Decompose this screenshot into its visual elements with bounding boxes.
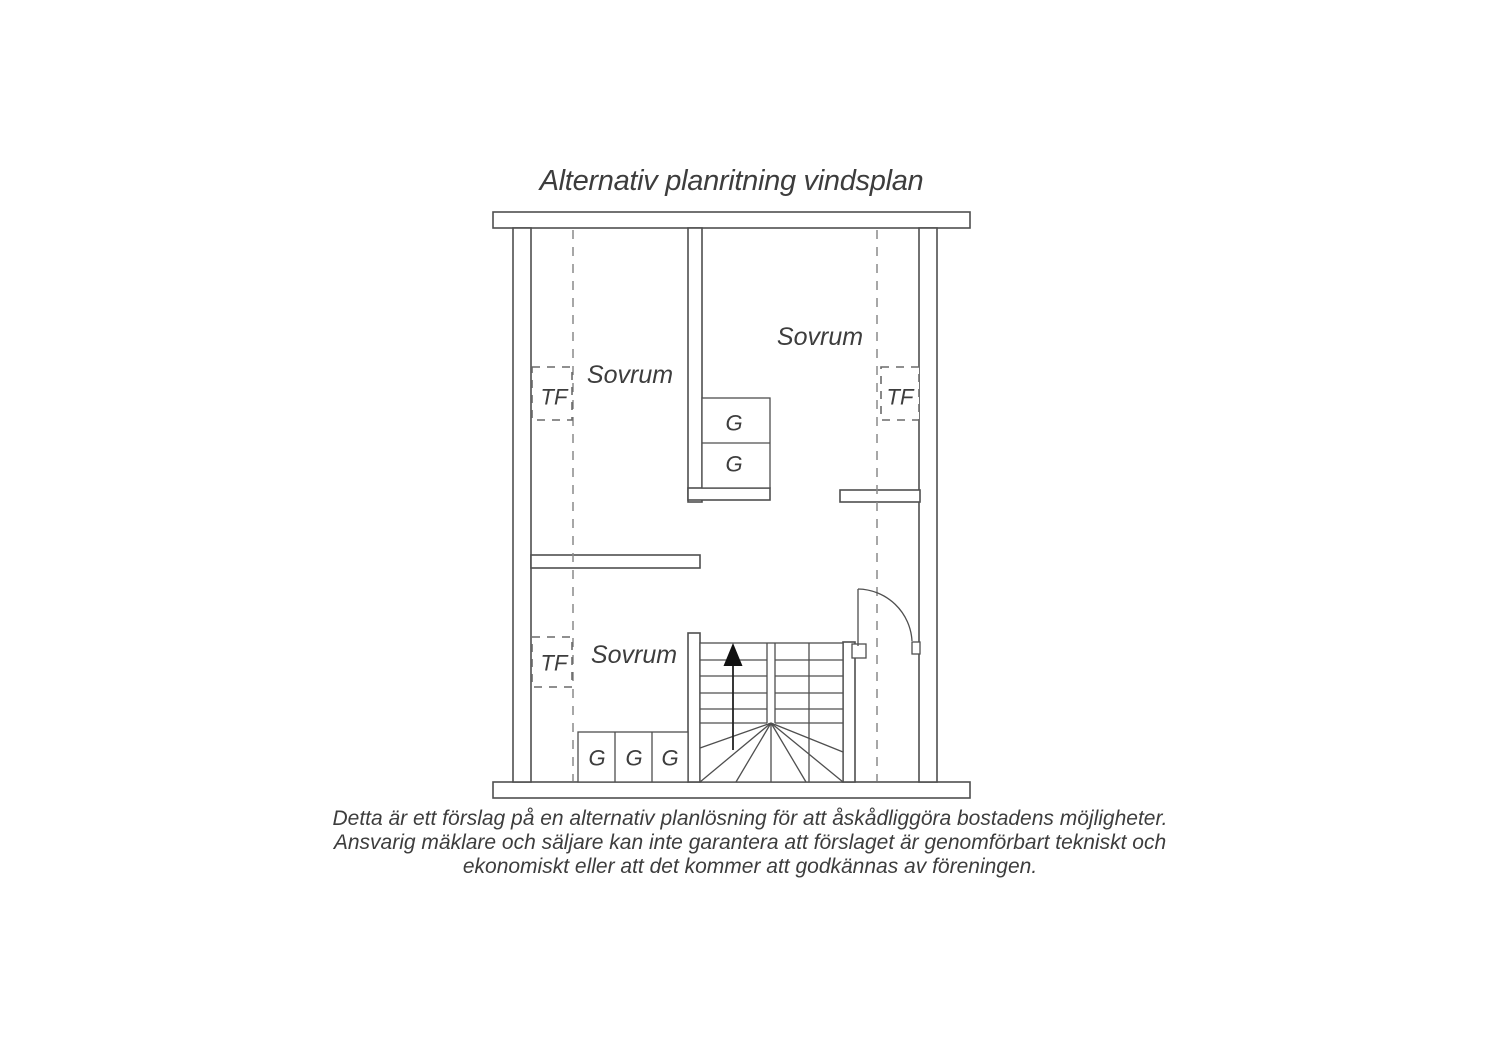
wall-horizontal-left — [531, 555, 700, 568]
disclaimer-line: Detta är ett förslag på en alternativ pl… — [0, 807, 1500, 831]
wall-between-top-bedrooms — [688, 228, 702, 502]
door — [852, 589, 920, 658]
staircase — [700, 643, 843, 782]
disclaimer-line: Ansvarig mäklare och säljare kan inte ga… — [0, 831, 1500, 855]
room-label-sovrum-top-left: Sovrum — [587, 361, 673, 389]
wall-right — [919, 228, 937, 782]
tf-label-top-right: TF — [887, 385, 915, 410]
wardrobe-label-g: G — [725, 411, 742, 436]
room-label-sovrum-top-right: Sovrum — [777, 323, 863, 351]
wardrobe-label-g: G — [625, 746, 642, 771]
tf-label-top-left: TF — [541, 385, 569, 410]
wall-bottom — [493, 782, 970, 798]
wardrobe-label-g: G — [588, 746, 605, 771]
wall-left — [513, 228, 531, 782]
wardrobe-label-g: G — [661, 746, 678, 771]
wall-stub-right — [840, 490, 920, 502]
door-jamb-left — [852, 644, 866, 658]
door-jamb-right — [912, 642, 920, 654]
floor-plan-page: Alternativ planritning vindsplan — [0, 0, 1500, 1060]
disclaimer-line: ekonomiskt eller att det kommer att godk… — [0, 855, 1500, 879]
wall-under-closet — [688, 488, 770, 500]
disclaimer-text: Detta är ett förslag på en alternativ pl… — [0, 807, 1500, 879]
wardrobe-label-g: G — [725, 452, 742, 477]
wall-stair-right — [843, 642, 855, 782]
wall-top — [493, 212, 970, 228]
door-swing-arc — [858, 589, 912, 641]
wall-stair-left — [688, 633, 700, 782]
floor-plan-drawing: Sovrum Sovrum Sovrum TF TF TF G G G G G — [0, 0, 1500, 1060]
tf-label-bottom-left: TF — [541, 651, 569, 676]
room-label-sovrum-bottom-left: Sovrum — [591, 641, 677, 669]
